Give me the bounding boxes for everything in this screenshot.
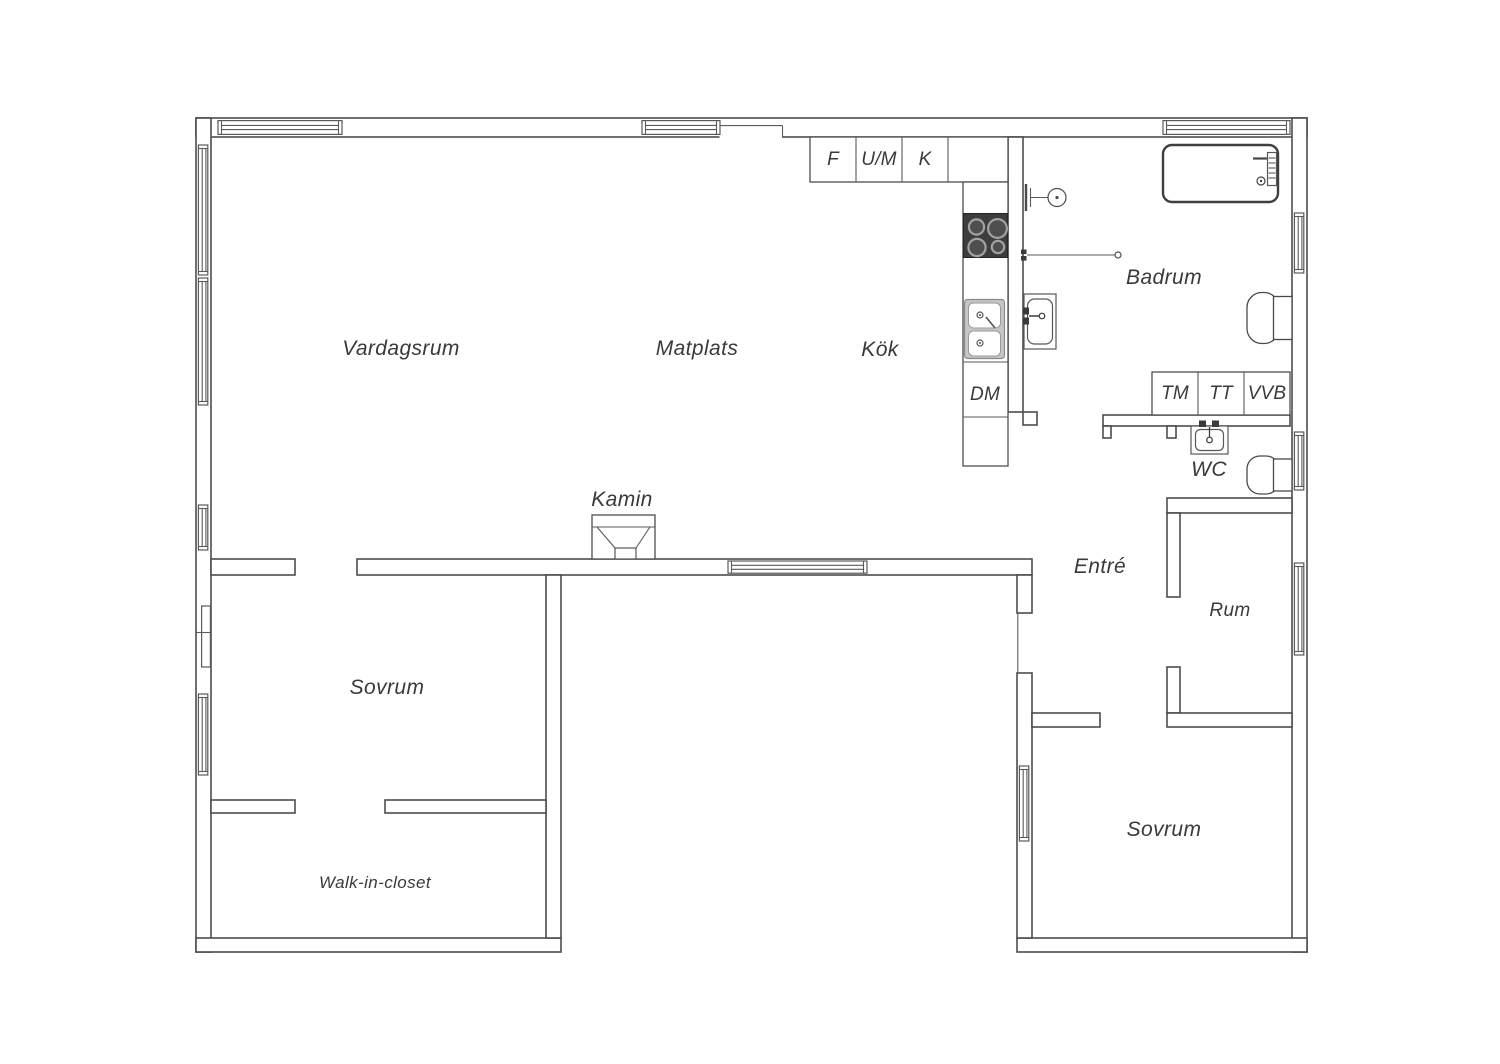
room-label-walk-in-closet: Walk-in-closet <box>319 873 431 893</box>
window <box>1019 766 1028 841</box>
window <box>198 278 207 405</box>
exterior-wall-bottom-left-wing <box>196 938 561 952</box>
shower <box>1026 184 1066 211</box>
window <box>642 121 720 135</box>
closet-divider-left <box>211 800 295 813</box>
room-label-rum: Rum <box>1209 600 1250 622</box>
appliance-label-um: U/M <box>861 149 896 171</box>
exterior-wall-bottom-right-wing <box>1017 938 1307 952</box>
window <box>1294 563 1303 655</box>
shower-screen <box>1021 250 1121 261</box>
kitchen-wall-stub <box>1023 412 1037 425</box>
feature-label-kamin: Kamin <box>591 488 653 512</box>
window <box>728 561 867 573</box>
stove <box>964 214 1008 258</box>
wc-door-jamb-left <box>1103 426 1111 438</box>
appliance-label-vvb: VVB <box>1248 383 1287 405</box>
appliance-label-tt: TT <box>1209 383 1233 405</box>
window <box>198 694 207 775</box>
appliance-label-dm: DM <box>970 384 1000 406</box>
window <box>1294 213 1303 273</box>
laundry-wall <box>1103 415 1290 426</box>
room-label-entre: Entré <box>1074 555 1126 579</box>
rum-west-wall-upper <box>1167 513 1180 597</box>
floorplan-drawing <box>0 0 1500 1064</box>
fireplace <box>592 515 655 559</box>
room-label-matplats: Matplats <box>656 337 739 361</box>
window <box>1294 432 1303 490</box>
closet-divider-right <box>385 800 546 813</box>
room-label-sovrum-right: Sovrum <box>1127 818 1202 842</box>
wc-door-jamb-right <box>1167 426 1176 438</box>
appliance-label-k: K <box>919 149 932 171</box>
bathtub <box>1163 145 1278 202</box>
top-wall-step <box>720 126 783 139</box>
floorplan: Vardagsrum Matplats Kök Badrum WC Entré … <box>0 0 1500 1064</box>
appliance-label-tm: TM <box>1161 383 1189 405</box>
entre-west-wall-upper <box>1017 575 1032 613</box>
rum-north-wall <box>1167 498 1292 513</box>
left-wing-east-wall <box>546 575 561 938</box>
room-label-vardagsrum: Vardagsrum <box>342 337 460 361</box>
room-label-sovrum-left: Sovrum <box>350 676 425 700</box>
kitchen-sink <box>965 300 1005 359</box>
badrum-toilet <box>1247 293 1292 344</box>
badrum-washbasin <box>1023 294 1056 349</box>
sovrum2-north-wall-right <box>1167 713 1292 727</box>
window <box>1163 121 1290 135</box>
sovrum2-north-wall-left <box>1032 713 1100 727</box>
window <box>198 505 207 550</box>
wc-toilet <box>1247 456 1292 494</box>
wc-washbasin <box>1191 421 1228 455</box>
interior-wall-mid <box>357 559 1032 575</box>
appliance-label-f: F <box>827 149 839 171</box>
room-label-kok: Kök <box>861 338 898 362</box>
interior-wall-mid-left <box>211 559 295 575</box>
room-label-wc: WC <box>1191 458 1227 482</box>
room-label-badrum: Badrum <box>1126 266 1202 290</box>
kitchen-badrum-wall <box>1008 137 1023 412</box>
rum-west-wall-lower <box>1167 667 1180 713</box>
window <box>198 145 207 275</box>
window <box>218 121 342 135</box>
